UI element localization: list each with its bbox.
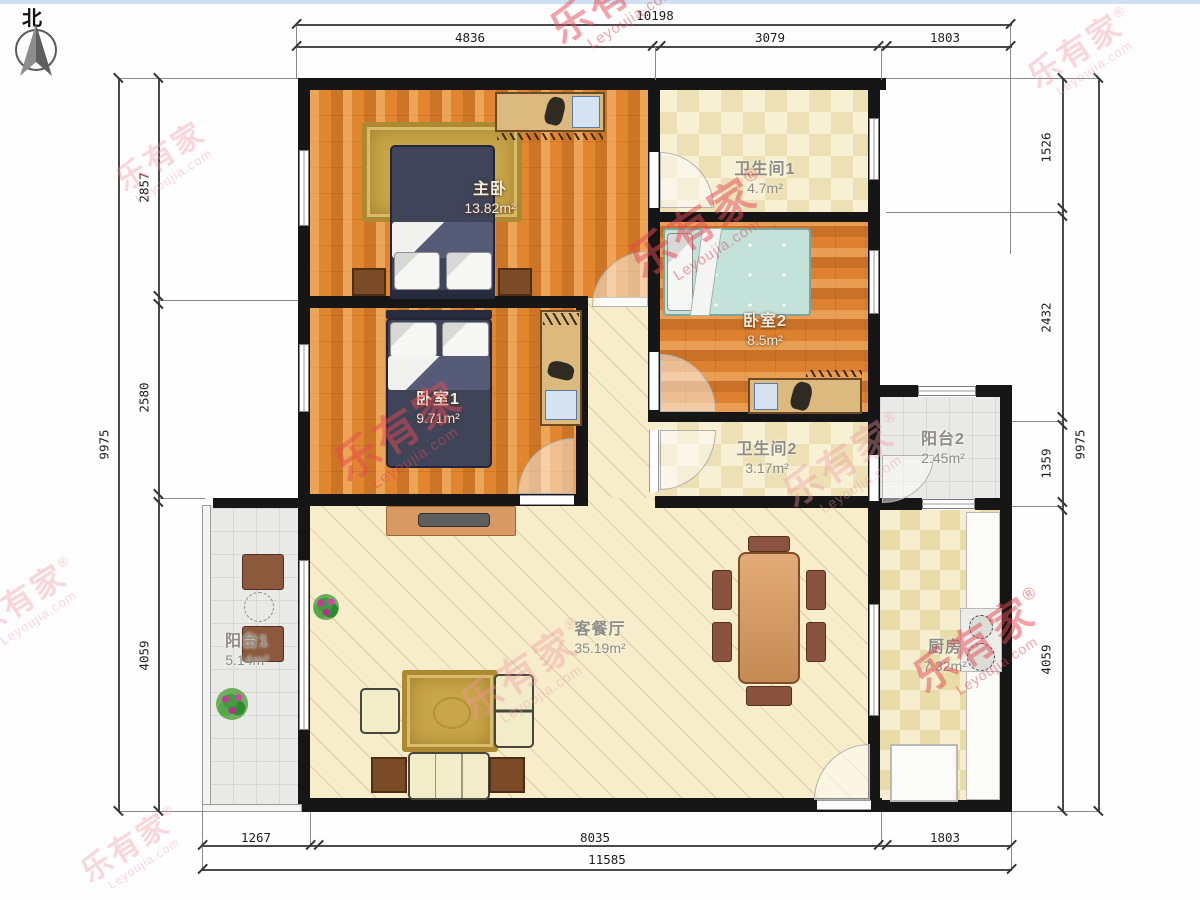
window-master-bedroom: [299, 150, 309, 226]
dim-right-seg-3: 1359: [1039, 436, 1054, 492]
door-balcony-2-threshold: [869, 455, 879, 501]
dim-right-seg-4: 4059: [1039, 632, 1054, 688]
watermark: 乐有家® Leyoujia.com: [1009, 0, 1161, 114]
hanger-rail-bedroom-1: [543, 313, 579, 325]
balcony-1-glass-bottom: [202, 804, 302, 812]
armchair: [360, 688, 400, 734]
side-table-left: [371, 757, 407, 793]
dining-chair: [712, 622, 732, 662]
sofa-three-seat: [408, 752, 490, 800]
watermark: 乐有家 Leyoujia.com: [90, 103, 240, 223]
dim-top-seg-1: 4836: [440, 30, 500, 45]
hanger-rail-master: [497, 133, 603, 140]
pillow: [394, 252, 440, 290]
pillow: [667, 233, 693, 311]
window-kitchen-pass: [869, 604, 879, 716]
dim-top-seg-3: 1803: [915, 30, 975, 45]
dim-right-seg-2: 2432: [1039, 290, 1054, 346]
pillow: [390, 322, 437, 358]
balcony-1-glass-left: [202, 505, 211, 810]
dining-table: [738, 552, 800, 684]
loveseat: [494, 674, 534, 748]
round-table: [244, 592, 274, 622]
stove: [960, 608, 1002, 672]
dim-top-seg-2: 3079: [740, 30, 800, 45]
hallway-floor: [588, 298, 655, 508]
dining-chair: [712, 570, 732, 610]
dining-chair: [746, 686, 792, 706]
window-bedroom-2: [869, 250, 879, 314]
floorplan-canvas: 北: [0, 0, 1200, 900]
dining-chair: [748, 536, 790, 552]
hanger-rail-bedroom-2: [806, 370, 862, 377]
dim-left-seg-3: 4059: [137, 628, 152, 684]
door-bathroom-1-threshold: [649, 152, 659, 208]
dining-chair: [806, 622, 826, 662]
dim-left-total: 9975: [97, 417, 112, 473]
compass-arrow-icon: [8, 22, 68, 82]
dim-bottom-seg-3: 1803: [915, 830, 975, 845]
watermark: 乐有家® Leyoujia.com: [0, 543, 105, 664]
dim-top-total: 10198: [620, 8, 690, 23]
dim-bottom-seg-2: 8035: [565, 830, 625, 845]
tv-icon: [418, 513, 490, 527]
window-balcony-2: [918, 386, 976, 396]
dining-chair: [806, 570, 826, 610]
watermark: 乐有家® Leyoujia.com: [537, 0, 703, 69]
window-bathroom-1: [869, 118, 879, 180]
dim-bottom-seg-1: 1267: [226, 830, 286, 845]
north-indicator: 北: [8, 2, 68, 82]
door-balcony-2-kitchen: [922, 499, 975, 509]
plant-icon: [313, 594, 339, 620]
dim-left-seg-1: 2857: [137, 160, 152, 216]
top-edge-strip: [0, 0, 1200, 4]
dim-left-seg-2: 2580: [137, 370, 152, 426]
watermark: 乐有家® Leyoujia.com: [60, 791, 210, 900]
pillow: [446, 252, 492, 290]
side-table-right: [489, 757, 525, 793]
dim-right-total: 9975: [1073, 417, 1088, 473]
shirt-icon: [572, 96, 600, 128]
dim-bottom-total: 11585: [572, 852, 642, 867]
window-bedroom-1: [299, 344, 309, 412]
rug-living: [402, 670, 498, 752]
door-balcony-1-slider: [299, 560, 309, 730]
nightstand-left: [352, 268, 386, 296]
balcony-chair: [242, 554, 284, 590]
headboard-master: [390, 290, 495, 299]
door-bathroom-2-threshold: [649, 430, 659, 492]
basin-icon: [545, 390, 577, 420]
plant-icon: [216, 688, 248, 720]
shirt-icon: [754, 383, 778, 410]
dim-right-seg-1: 1526: [1039, 120, 1054, 176]
door-bedroom-2-threshold: [649, 352, 659, 410]
pillow: [442, 322, 489, 358]
kitchen-sink: [890, 744, 958, 802]
balcony-chair: [242, 626, 284, 662]
door-entry-threshold: [817, 800, 871, 810]
nightstand-right: [498, 268, 532, 296]
bed-1-fold: [388, 356, 490, 390]
door-bedroom-1-threshold: [520, 495, 574, 505]
